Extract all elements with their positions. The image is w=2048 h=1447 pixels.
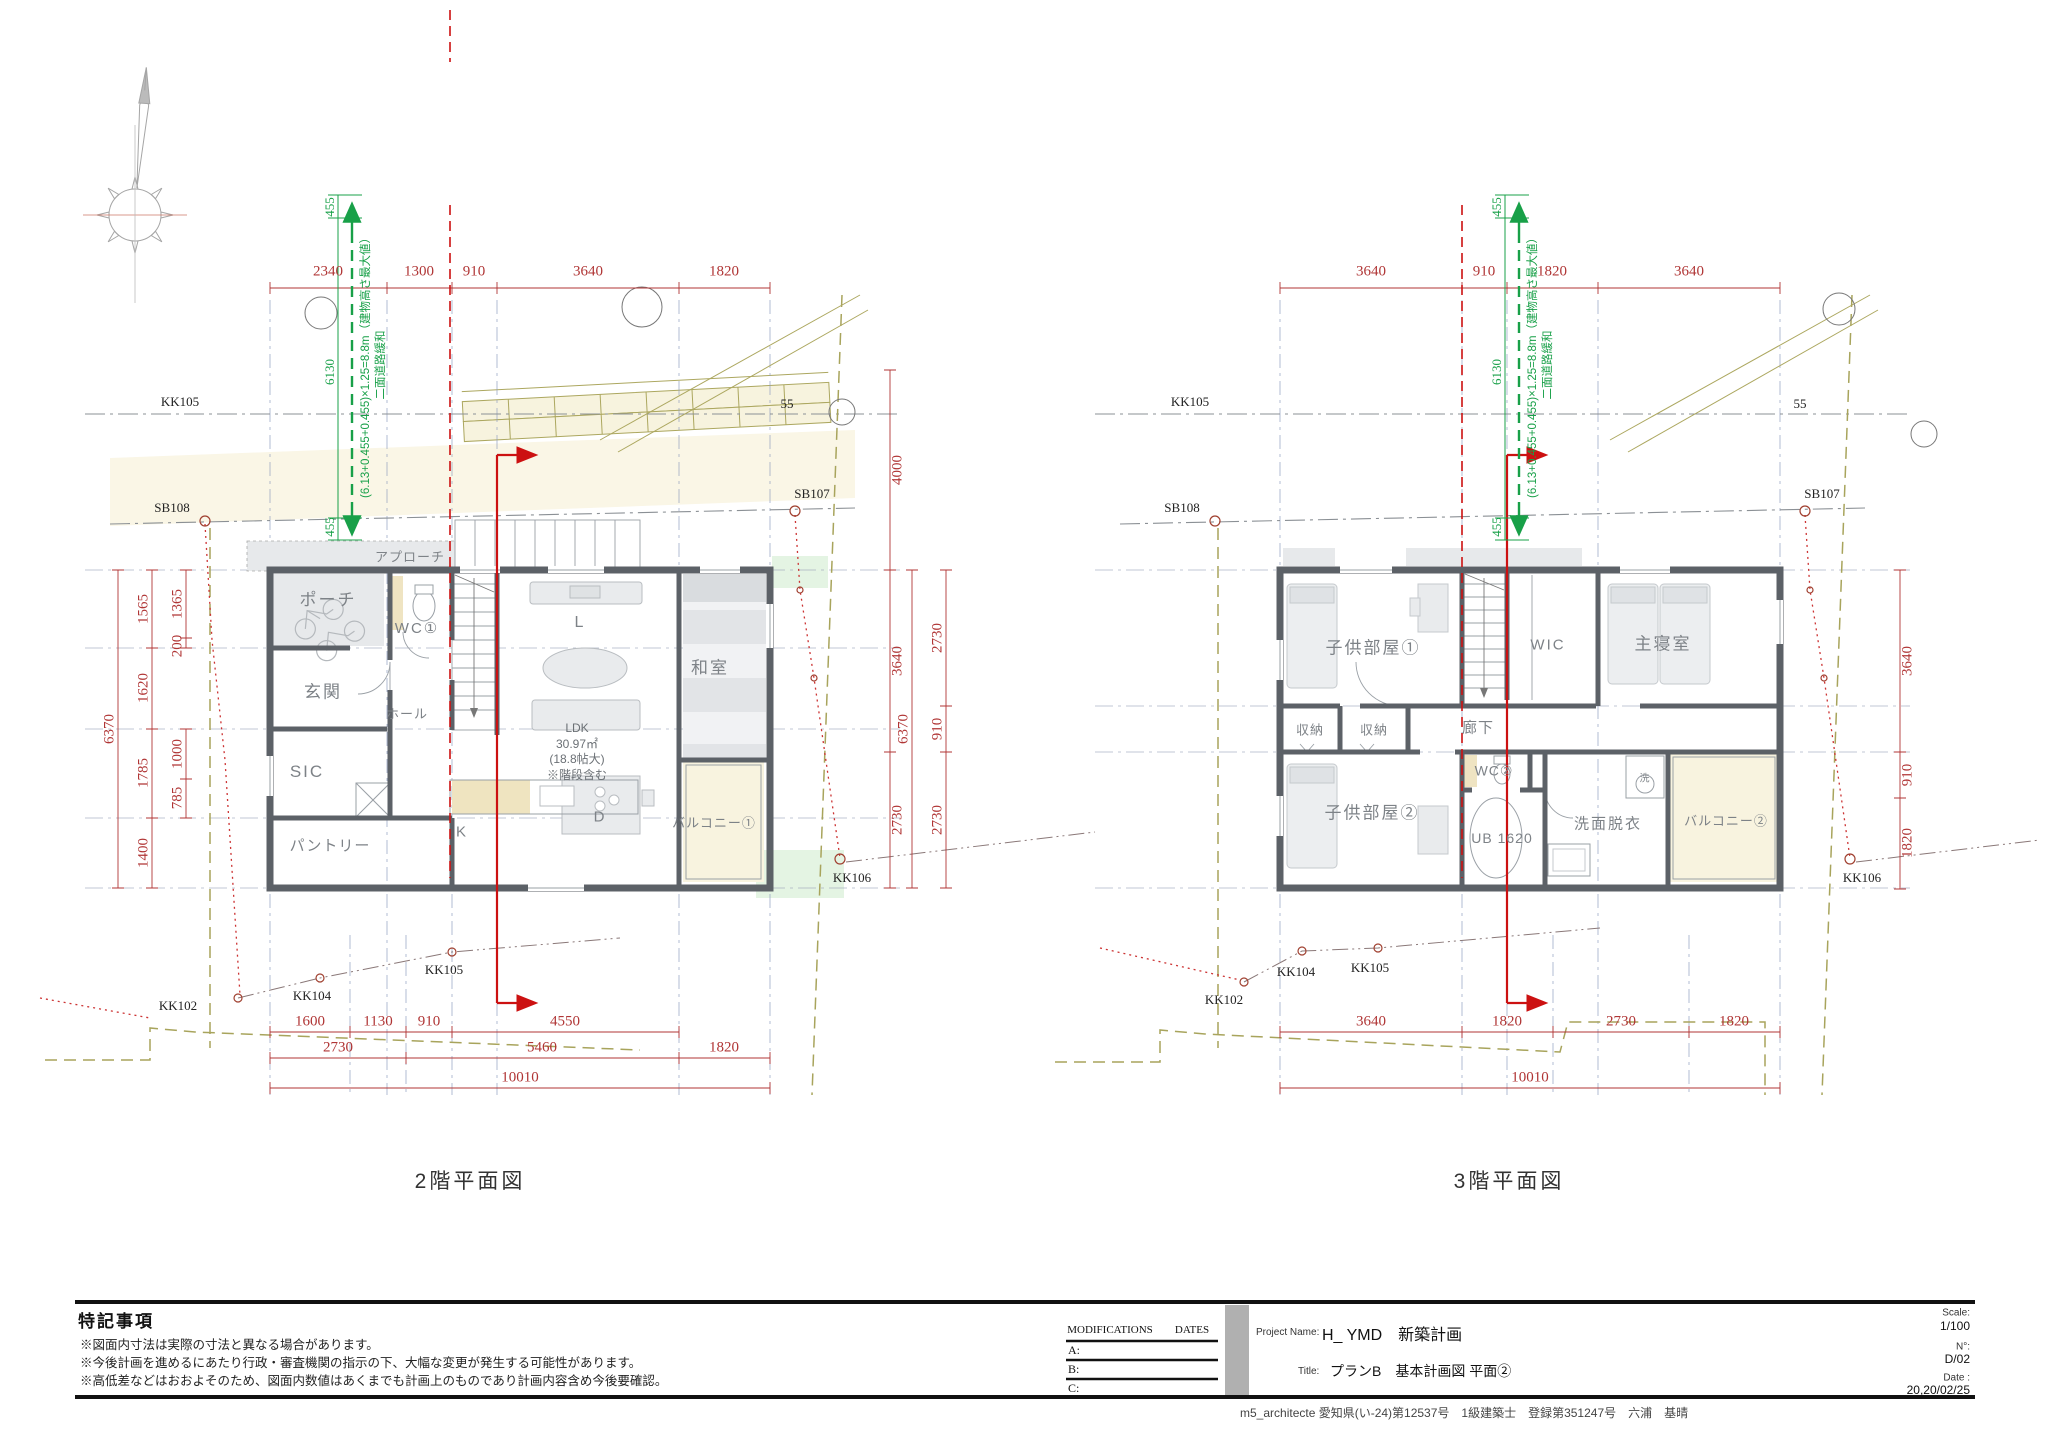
dim: 3640: [1900, 646, 1917, 676]
room-l: L: [575, 614, 586, 632]
notes-title: 特記事項: [78, 1307, 154, 1332]
green-height-note: (6.13+0.455+0.455)×1.25=8.8m（建物高さ最大値）二面道…: [359, 232, 389, 498]
green-height-note: (6.13+0.455+0.455)×1.25=8.8m（建物高さ最大値）二面道…: [1526, 232, 1556, 498]
dim: 785: [170, 787, 187, 810]
green-dim-455: 455: [1489, 197, 1505, 217]
marker-kk105b: KK105: [1351, 960, 1389, 976]
room-senmen: 洗面脱衣: [1574, 813, 1642, 834]
dim: 1785: [136, 758, 153, 788]
scale-label: Scale:: [1942, 1308, 1970, 1319]
project-name-label: Project Name:: [1256, 1327, 1319, 1338]
notes-line: ※図面内寸法は実際の寸法と異なる場合があります。: [80, 1334, 379, 1353]
room-washitsu: 和室: [691, 654, 729, 679]
dim: 3640: [1674, 264, 1704, 281]
room-d: D: [594, 809, 607, 826]
title-label: Title:: [1298, 1366, 1319, 1377]
green-dim-6130: 6130: [1489, 359, 1505, 385]
marker-kk106: KK106: [833, 870, 871, 886]
dim: 1130: [363, 1014, 392, 1031]
plan-linework: [0, 0, 2048, 1447]
north-compass-icon: [83, 67, 187, 303]
marker-sb108: SB108: [1164, 500, 1199, 516]
mod-row-c: C:: [1068, 1381, 1079, 1396]
dim: 4000: [890, 455, 907, 485]
caption-3f: 3階平面図: [1454, 1165, 1565, 1195]
marker-kk105b: KK105: [425, 962, 463, 978]
room-genkan: 玄関: [304, 678, 342, 703]
washer-label: 洗: [1640, 770, 1651, 785]
scale-value: 1/100: [1940, 1319, 1970, 1333]
date-label: Date :: [1943, 1373, 1970, 1384]
dim: 910: [1900, 764, 1917, 787]
marker-kk106: KK106: [1843, 870, 1881, 886]
marker-kk105: KK105: [1171, 394, 1209, 410]
room-master: 主寝室: [1635, 630, 1692, 655]
dates-header: DATES: [1175, 1324, 1209, 1336]
dim: 6370: [896, 714, 913, 744]
green-dim-455: 455: [322, 197, 338, 217]
green-dim-455b: 455: [322, 517, 338, 537]
architect-footer: m5_architecte 愛知県(い-24)第12537号 1級建築士 登録第…: [1240, 1404, 1688, 1421]
marker-55: 55: [781, 396, 794, 412]
dim: 910: [418, 1014, 441, 1031]
dim: 4550: [550, 1014, 580, 1031]
dim: 2340: [313, 264, 343, 281]
room-wic: WIC: [1530, 637, 1565, 654]
room-k: K: [456, 824, 468, 841]
dim: 1365: [170, 589, 187, 619]
dim: 1620: [136, 673, 153, 703]
room-sic: SIC: [290, 762, 324, 782]
marker-sb107: SB107: [794, 486, 829, 502]
dim: 200: [170, 635, 187, 658]
room-hall: ホール: [386, 704, 428, 723]
dim: 1300: [404, 264, 434, 281]
number-value: D/02: [1945, 1352, 1970, 1366]
room-approach: アプローチ: [375, 547, 445, 566]
room-balcony1: バルコニー①: [672, 813, 756, 832]
dim: 910: [930, 718, 947, 741]
dim: 1000: [170, 739, 187, 769]
marker-sb107: SB107: [1804, 486, 1839, 502]
dim: 5460: [527, 1040, 557, 1057]
dim: 1400: [136, 838, 153, 868]
dim: 1820: [1719, 1014, 1749, 1031]
green-dim-455b: 455: [1489, 517, 1505, 537]
marker-sb108: SB108: [154, 500, 189, 516]
mod-row-b: B:: [1068, 1362, 1079, 1377]
dim: 1820: [1900, 828, 1917, 858]
dim: 910: [1473, 264, 1496, 281]
room-ub: UB 1620: [1471, 830, 1532, 846]
notes-line: ※今後計画を進めるにあたり行政・審査機関の指示の下、大幅な変更が発生する可能性が…: [80, 1352, 641, 1371]
marker-kk104: KK104: [293, 988, 331, 1004]
room-wc1: WC①: [395, 619, 439, 637]
dim: 1820: [709, 264, 739, 281]
marker-55: 55: [1794, 396, 1807, 412]
room-storage2: 収納: [1360, 720, 1388, 739]
room-kids2: 子供部屋②: [1325, 799, 1420, 824]
dim: 10010: [501, 1070, 539, 1087]
dim: 3640: [1356, 264, 1386, 281]
marker-kk105: KK105: [161, 394, 199, 410]
dim: 3640: [890, 646, 907, 676]
room-pantry: パントリー: [290, 835, 371, 856]
dim: 2730: [930, 805, 947, 835]
dim: 1820: [1492, 1014, 1522, 1031]
dim: 3640: [1356, 1014, 1386, 1031]
dim: 910: [463, 264, 486, 281]
dim: 10010: [1511, 1070, 1549, 1087]
room-porch: ポーチ: [300, 586, 357, 611]
title-value: プランB 基本計画図 平面②: [1330, 1361, 1511, 1381]
marker-kk102: KK102: [1205, 992, 1243, 1008]
ldk-area-note: LDK30.97㎡ (18.8帖大)※階段含む: [547, 721, 607, 783]
dim: 1565: [136, 594, 153, 624]
room-wc2: WC②: [1475, 763, 1514, 780]
floor-plan-sheet: アプローチ ポーチ WC① 玄関 ホール SIC パントリー K D L 和室 …: [0, 0, 2048, 1447]
mod-row-a: A:: [1068, 1343, 1080, 1358]
green-dim-6130: 6130: [322, 359, 338, 385]
dim: 3640: [573, 264, 603, 281]
dim: 1600: [295, 1014, 325, 1031]
dim: 1820: [709, 1040, 739, 1057]
notes-line: ※高低差などはおおよそのため、図面内数値はあくまでも計画上のものであり計画内容含…: [80, 1370, 667, 1389]
caption-2f: 2階平面図: [415, 1165, 526, 1195]
date-value: 20,20/02/25: [1907, 1383, 1970, 1397]
dim: 2730: [930, 623, 947, 653]
marker-kk104: KK104: [1277, 964, 1315, 980]
dim: 2730: [323, 1040, 353, 1057]
dim: 2730: [890, 805, 907, 835]
room-corridor: 廊下: [1462, 717, 1494, 738]
number-label: N°:: [1956, 1342, 1970, 1353]
room-storage1: 収納: [1296, 720, 1324, 739]
room-balcony2: バルコニー②: [1684, 811, 1768, 830]
dim: 2730: [1606, 1014, 1636, 1031]
modifications-header: MODIFICATIONS: [1067, 1324, 1153, 1336]
marker-kk102: KK102: [159, 998, 197, 1014]
dim: 6370: [102, 714, 119, 744]
project-name-value: H_ YMD 新築計画: [1322, 1321, 1462, 1345]
room-kids1: 子供部屋①: [1326, 634, 1421, 659]
